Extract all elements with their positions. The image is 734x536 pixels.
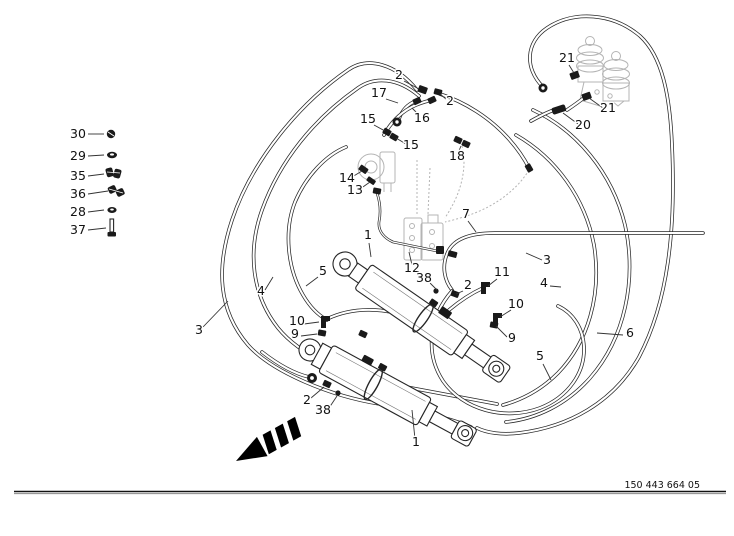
callout-4-right: 4 (540, 275, 548, 290)
callout-5-right: 5 (536, 348, 544, 363)
callout-21-lower: 21 (600, 100, 616, 115)
callout-2-bottom: 2 (303, 392, 311, 407)
legend-label-29: 29 (70, 148, 86, 163)
legend-labels: 30 29 35 36 28 37 (70, 126, 86, 237)
legend-icons (105, 130, 125, 237)
callout-2-top: 2 (395, 67, 403, 82)
callout-38-bottom: 38 (315, 402, 331, 417)
hydraulics-diagram: 30 29 35 36 28 37 2 17 2 15 16 15 18 21 … (0, 0, 734, 536)
bolt-icon (108, 219, 117, 237)
legend-label-30: 30 (70, 126, 86, 141)
callout-7: 7 (462, 206, 470, 221)
callout-6: 6 (626, 325, 634, 340)
nut-icon (107, 152, 117, 158)
legend-label-35: 35 (70, 168, 86, 183)
callout-1-top: 1 (364, 227, 372, 242)
callout-10-right: 10 (508, 296, 524, 311)
callout-17: 17 (371, 85, 387, 100)
callout-3-left: 3 (195, 322, 203, 337)
screw-icon (107, 130, 115, 138)
clamp-half-icon (105, 167, 122, 179)
drawing-number: 150 443 664 05 (624, 480, 700, 491)
callout-18: 18 (449, 148, 465, 163)
callout-9-right: 9 (508, 330, 516, 345)
hose-5-left (288, 147, 346, 320)
callout-4-left: 4 (257, 283, 265, 298)
callout-5-left: 5 (319, 263, 327, 278)
clamp-icon (107, 185, 125, 198)
callout-16: 16 (414, 110, 430, 125)
parts-diagram-page: 30 29 35 36 28 37 2 17 2 15 16 15 18 21 … (0, 0, 734, 536)
callout-15-right: 15 (403, 137, 419, 152)
legend-label-37: 37 (70, 222, 86, 237)
legend-label-28: 28 (70, 204, 86, 219)
footer: 150 443 664 05 (14, 480, 726, 494)
valve-block (404, 146, 529, 260)
legend-label-36: 36 (70, 186, 86, 201)
callout-3-right: 3 (543, 252, 551, 267)
callout-2-top-right: 2 (446, 93, 454, 108)
direction-arrow-icon (231, 416, 306, 471)
callout-2-mid: 2 (464, 277, 472, 292)
nut-icon (107, 207, 116, 213)
callout-20: 20 (575, 117, 591, 132)
callout-1-bottom: 1 (412, 434, 420, 449)
callout-15-left: 15 (360, 111, 376, 126)
callout-11: 11 (494, 264, 510, 279)
callout-38-top: 38 (416, 270, 432, 285)
callout-9-left: 9 (291, 326, 299, 341)
callout-13: 13 (347, 182, 363, 197)
callout-21-upper: 21 (559, 50, 575, 65)
